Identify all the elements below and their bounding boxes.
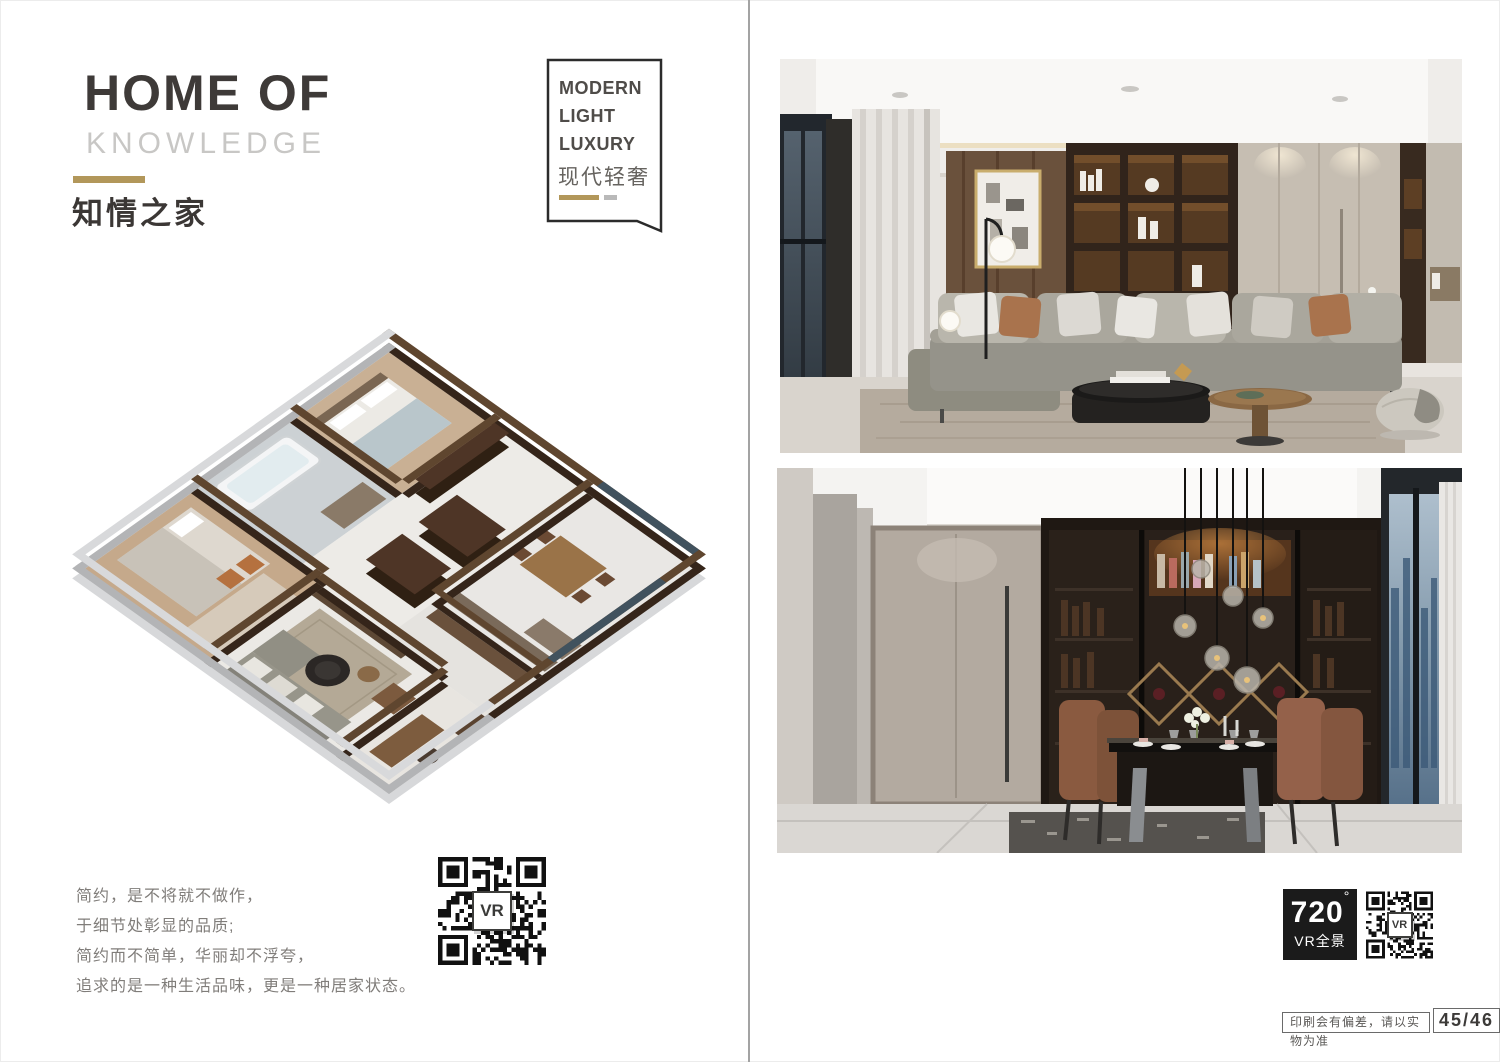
- badge-line-2: LIGHT: [559, 106, 616, 127]
- page-divider: [748, 0, 750, 1062]
- vr-720-number: 720: [1291, 896, 1344, 929]
- quote-line: 简约而不简单，华丽却不浮夸，: [76, 942, 416, 972]
- vr-qr-code: VR: [438, 856, 546, 966]
- badge-gold-rule: [559, 195, 599, 200]
- quote-line: 追求的是一种生活品味，更是一种居家状态。: [76, 972, 416, 1002]
- gold-rule: [73, 176, 145, 183]
- print-disclaimer: 印刷会有偏差，请以实物为准: [1282, 1012, 1430, 1033]
- style-badge: MODERN LIGHT LUXURY 现代轻奢: [546, 58, 664, 236]
- badge-line-1: MODERN: [559, 78, 642, 99]
- badge-gray-rule: [604, 195, 617, 200]
- page-number: 45/46: [1433, 1008, 1500, 1033]
- badge-line-3: LUXURY: [559, 134, 635, 155]
- dining-room-photo: [777, 468, 1462, 853]
- page-title-cn: 知情之家: [72, 188, 208, 233]
- qr-vr-label: VR: [1387, 912, 1413, 938]
- vr-qr-code-small: VR: [1366, 891, 1433, 959]
- vr-720-label: VR全景: [1294, 931, 1345, 951]
- page-title-en-line1: HOME OF: [84, 64, 331, 122]
- living-room-photo: [780, 59, 1462, 453]
- badge-cn: 现代轻奢: [558, 161, 650, 191]
- vr-720-badge: 720° VR全景: [1283, 889, 1357, 960]
- intro-quote: 简约，是不将就不做作， 于细节处彰显的品质; 简约而不简单，华丽却不浮夸， 追求…: [76, 882, 416, 1002]
- catalog-spread: HOME OF KNOWLEDGE 知情之家 MODERN LIGHT LUXU…: [0, 0, 1500, 1062]
- quote-line: 简约，是不将就不做作，: [76, 882, 416, 912]
- quote-line: 于细节处彰显的品质;: [76, 912, 416, 942]
- page-title-en-line2: KNOWLEDGE: [86, 127, 326, 161]
- page-footer: 印刷会有偏差，请以实物为准 45/46: [1282, 1008, 1500, 1033]
- qr-vr-label: VR: [472, 891, 512, 931]
- floorplan-render: [58, 264, 720, 854]
- degree-symbol: °: [1344, 888, 1350, 904]
